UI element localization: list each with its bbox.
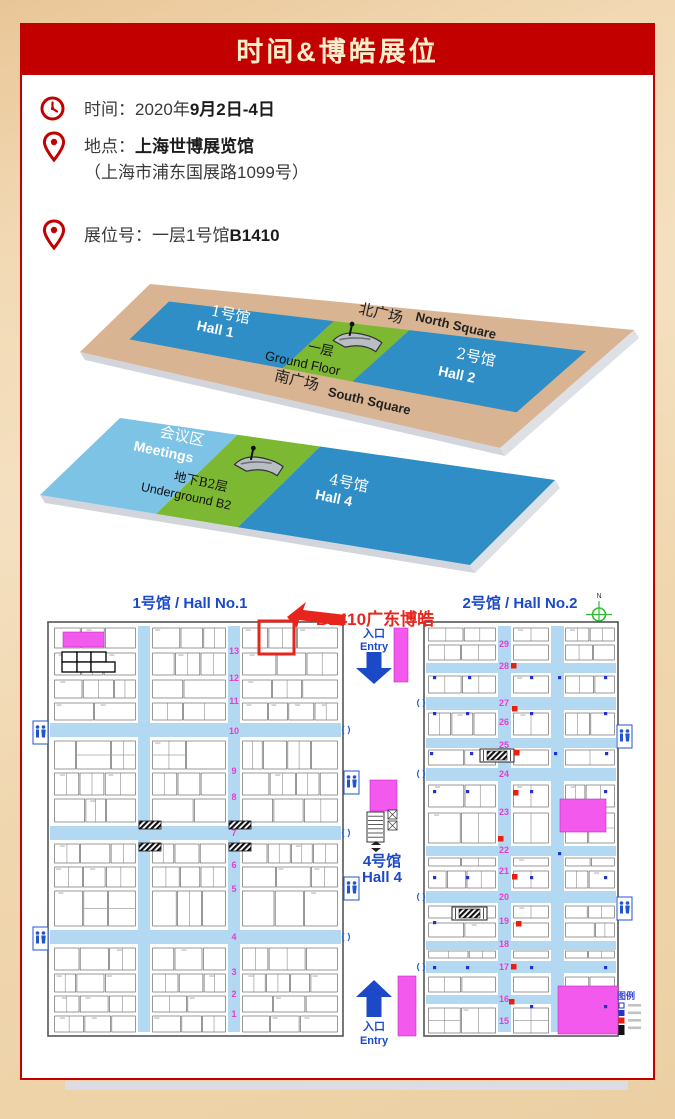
booth <box>153 799 194 822</box>
location-label: 地点： <box>84 137 135 156</box>
pillar-marker <box>470 752 473 755</box>
booth <box>429 871 447 888</box>
pillar-marker <box>530 790 533 793</box>
booth <box>594 645 615 660</box>
booth <box>452 713 473 735</box>
booth <box>589 871 614 888</box>
aisle-number: 4 <box>231 932 236 942</box>
booth <box>55 680 82 698</box>
entry-label-top: Entry <box>360 641 389 653</box>
pillar-marker <box>530 712 533 715</box>
booth <box>55 948 79 970</box>
hall1-floorplan: 13121110987654321 <box>48 622 343 1036</box>
outlined-booth-cluster <box>77 662 91 672</box>
aisle-number: 20 <box>499 892 509 902</box>
booth <box>243 628 268 648</box>
pillar-marker <box>530 876 533 879</box>
booth <box>591 713 615 735</box>
booth <box>303 680 338 698</box>
feature-area-magenta <box>394 628 408 682</box>
aisle-number: 8 <box>231 792 236 802</box>
booth <box>243 996 273 1012</box>
aisle-number: 23 <box>499 807 509 817</box>
booth <box>274 799 303 822</box>
booth <box>194 799 225 822</box>
aisle-number: 5 <box>231 884 236 894</box>
stair-hatch <box>229 843 251 851</box>
booth <box>305 891 338 926</box>
aisle-number: 26 <box>499 717 509 727</box>
time-label: 时间： <box>84 100 135 119</box>
aisle-number: 17 <box>499 962 509 972</box>
booth <box>153 653 175 675</box>
booth <box>179 974 203 992</box>
map-legend: 图例 <box>617 990 641 1035</box>
aisle-number: 12 <box>229 673 239 683</box>
outlined-booth-cluster <box>91 662 115 672</box>
feature-area-magenta <box>560 799 606 832</box>
fire-point-marker <box>512 706 518 712</box>
stairs-icon <box>367 812 384 842</box>
booth <box>153 891 177 926</box>
aisle-number: 29 <box>499 639 509 649</box>
booth <box>566 951 588 958</box>
booth <box>275 891 303 926</box>
entry-arrow-up <box>356 980 392 1017</box>
booth <box>200 844 225 863</box>
outlined-booth-cluster <box>62 662 77 672</box>
pillar-marker <box>433 966 436 969</box>
location-row: 地点：上海世博展览馆 （上海市浦东国展路1099号） <box>84 134 309 186</box>
aisle-number: 9 <box>231 766 236 776</box>
booth <box>298 628 338 648</box>
booth <box>447 871 466 888</box>
booth <box>429 923 464 937</box>
pillar-marker <box>604 1005 607 1008</box>
booth <box>243 703 268 720</box>
clock-icon <box>39 95 66 127</box>
pillar-marker <box>604 966 607 969</box>
stair-hatch <box>139 843 161 851</box>
booth <box>112 1016 136 1032</box>
booth <box>187 741 226 769</box>
booth <box>55 891 83 926</box>
booth <box>181 628 203 648</box>
feature-area-magenta <box>63 632 104 647</box>
aisle-number: 24 <box>499 769 509 779</box>
booth <box>474 713 495 735</box>
pillar-marker <box>530 676 533 679</box>
fire-point-marker <box>514 750 520 756</box>
booth <box>263 741 286 769</box>
booth <box>566 923 595 937</box>
feature-area-magenta <box>370 780 397 811</box>
booth <box>514 858 549 866</box>
booth <box>243 799 273 822</box>
aisle <box>426 663 616 673</box>
pillar-marker <box>530 1005 533 1008</box>
entry-arrow-down <box>356 652 392 684</box>
booth <box>566 906 588 918</box>
restroom-icon <box>344 877 359 900</box>
fire-point-marker <box>511 964 517 970</box>
pillar-marker <box>433 676 436 679</box>
booth <box>429 785 464 807</box>
aisle <box>426 961 616 973</box>
pillar-marker <box>530 966 533 969</box>
fire-point-marker <box>512 874 518 880</box>
entry-label-bottom: 入口 <box>363 1020 385 1033</box>
aisle-number: 13 <box>229 646 239 656</box>
aisle-number: 11 <box>229 696 239 706</box>
booth <box>514 951 549 958</box>
booth <box>77 974 104 992</box>
aisle-number: 6 <box>231 860 236 870</box>
pillar-marker <box>466 790 469 793</box>
booth-value: B1410 <box>229 226 279 245</box>
hall1-plan-title: 1号馆 / Hall No.1 <box>132 594 247 612</box>
pillar-marker <box>433 921 436 924</box>
aisle-number: 16 <box>499 994 509 1004</box>
section-banner: 时间&博皓展位 <box>20 23 655 75</box>
booth <box>182 1016 202 1032</box>
pillar-marker <box>468 676 471 679</box>
restroom-icon <box>33 721 48 744</box>
pillar-marker <box>604 876 607 879</box>
pillar-marker <box>554 752 557 755</box>
booth <box>312 741 338 769</box>
feature-area-magenta <box>558 986 618 1034</box>
fire-point-marker <box>516 921 522 927</box>
aisle <box>426 768 616 781</box>
aisle <box>426 846 616 856</box>
booth <box>55 799 85 822</box>
booth <box>277 653 306 675</box>
booth <box>105 974 135 992</box>
booth <box>153 948 174 970</box>
booth <box>85 1016 111 1032</box>
aisle-number: 22 <box>499 845 509 855</box>
aisle-number: 18 <box>499 939 509 949</box>
pillar-marker <box>433 790 436 793</box>
pillar-marker <box>433 712 436 715</box>
aisle <box>50 723 341 737</box>
booth <box>243 773 269 795</box>
booth <box>203 891 226 926</box>
stair-hatch <box>229 821 251 829</box>
booth <box>81 844 110 863</box>
aisle <box>426 941 616 950</box>
booth <box>566 858 591 866</box>
booth <box>289 703 314 720</box>
aisle-number: 7 <box>231 828 236 838</box>
booth <box>175 948 202 970</box>
legend-title: 图例 <box>617 990 635 1001</box>
booth <box>243 653 276 675</box>
pillar-marker <box>558 676 561 679</box>
aisle <box>50 826 341 840</box>
time-row: 时间：2020年9月2日-4日 <box>84 97 275 123</box>
booth-label: 展位号： <box>84 226 152 245</box>
booth <box>105 628 135 648</box>
booth <box>80 996 108 1012</box>
booth <box>153 680 183 698</box>
aisle <box>50 930 341 944</box>
pillar-marker <box>466 966 469 969</box>
booth <box>107 799 136 822</box>
booth <box>462 977 496 992</box>
fire-point-marker <box>511 663 517 669</box>
booth <box>465 923 496 937</box>
booth <box>153 628 180 648</box>
booth <box>306 948 337 970</box>
time-value: 9月2日-4日 <box>190 100 275 119</box>
booth <box>311 974 338 992</box>
pillar-marker <box>604 790 607 793</box>
pillar-marker <box>604 712 607 715</box>
escalator-walkway <box>480 749 514 762</box>
elevator-arrows-icon <box>371 841 381 852</box>
outlined-booth-cluster <box>77 652 91 662</box>
booth <box>277 867 311 887</box>
promo-page: 时间&博皓展位 时间：2020年9月2日-4日 地点：上海世博展览馆 （上海市浦… <box>0 0 675 1119</box>
booth <box>80 948 108 970</box>
booth <box>243 867 276 887</box>
booth <box>429 858 461 866</box>
fire-point-marker <box>509 999 515 1005</box>
pillar-marker <box>466 876 469 879</box>
aisle-number: 3 <box>231 967 236 977</box>
booth-row: 展位号：一层1号馆B1410 <box>84 223 280 249</box>
booth <box>175 844 199 863</box>
feature-area-magenta <box>398 976 416 1036</box>
restroom-icon <box>617 897 632 920</box>
booth <box>84 867 106 887</box>
page-title: 时间&博皓展位 <box>236 30 439 69</box>
aisle-number: 10 <box>229 726 239 736</box>
restroom-icon <box>33 927 48 950</box>
booth <box>243 1016 270 1032</box>
booth <box>591 858 614 866</box>
restroom-icon <box>344 771 359 794</box>
isometric-venue-map: 北广场North Square南广场South Square1号馆Hall 12… <box>40 284 639 573</box>
floorplan-map: 1号馆 / Hall No.12号馆 / Hall No.2N131211109… <box>33 593 641 1047</box>
hall4-plan-label: 4号馆 <box>363 852 401 870</box>
booth <box>429 813 461 843</box>
location-value: 上海世博展览馆 <box>135 137 254 156</box>
aisle-number: 1 <box>231 1009 236 1019</box>
hall2-plan-title: 2号馆 / Hall No.2 <box>462 594 577 612</box>
pillar-marker <box>605 752 608 755</box>
aisle-number: 19 <box>499 916 509 926</box>
booth <box>243 891 274 926</box>
pillar-marker <box>558 852 561 855</box>
hall4-plan-label: Hall 4 <box>362 869 403 886</box>
aisle-number: 2 <box>231 989 236 999</box>
booth <box>55 741 76 769</box>
stair-hatch <box>139 821 161 829</box>
booth <box>178 773 200 795</box>
booth <box>203 948 225 970</box>
booth-annotation: B1410广东博皓 <box>316 609 434 629</box>
fire-point-marker <box>513 790 519 796</box>
booth <box>291 974 310 992</box>
booth <box>306 996 337 1012</box>
pillar-marker <box>604 676 607 679</box>
booth-pin-icon <box>42 219 66 256</box>
booth <box>514 977 549 992</box>
outlined-booth-cluster <box>62 652 77 662</box>
aisle-number: 28 <box>499 661 509 671</box>
aisle <box>426 697 616 710</box>
booth <box>429 750 464 765</box>
booth <box>180 867 199 887</box>
aisle-number: 21 <box>499 866 509 876</box>
compass-n-label: N <box>596 593 601 600</box>
entry-label-bottom: Entry <box>360 1035 389 1047</box>
restroom-icon <box>617 725 632 748</box>
booth <box>514 645 549 660</box>
aisle-number: 27 <box>499 698 509 708</box>
fire-point-marker <box>498 836 504 842</box>
outlined-booth-cluster <box>91 652 106 662</box>
aisle-number: 15 <box>499 1016 509 1026</box>
pillar-marker <box>433 876 436 879</box>
aisle <box>426 738 616 748</box>
aisle <box>426 891 616 903</box>
location-pin-icon <box>42 131 66 168</box>
booth <box>320 773 337 795</box>
pillar-marker <box>466 712 469 715</box>
booth <box>243 680 272 698</box>
booth <box>184 680 225 698</box>
pillar-marker <box>430 752 433 755</box>
booth <box>201 773 225 795</box>
location-address: （上海市浦东国展路1099号） <box>84 163 309 182</box>
escalator-walkway <box>452 907 487 920</box>
